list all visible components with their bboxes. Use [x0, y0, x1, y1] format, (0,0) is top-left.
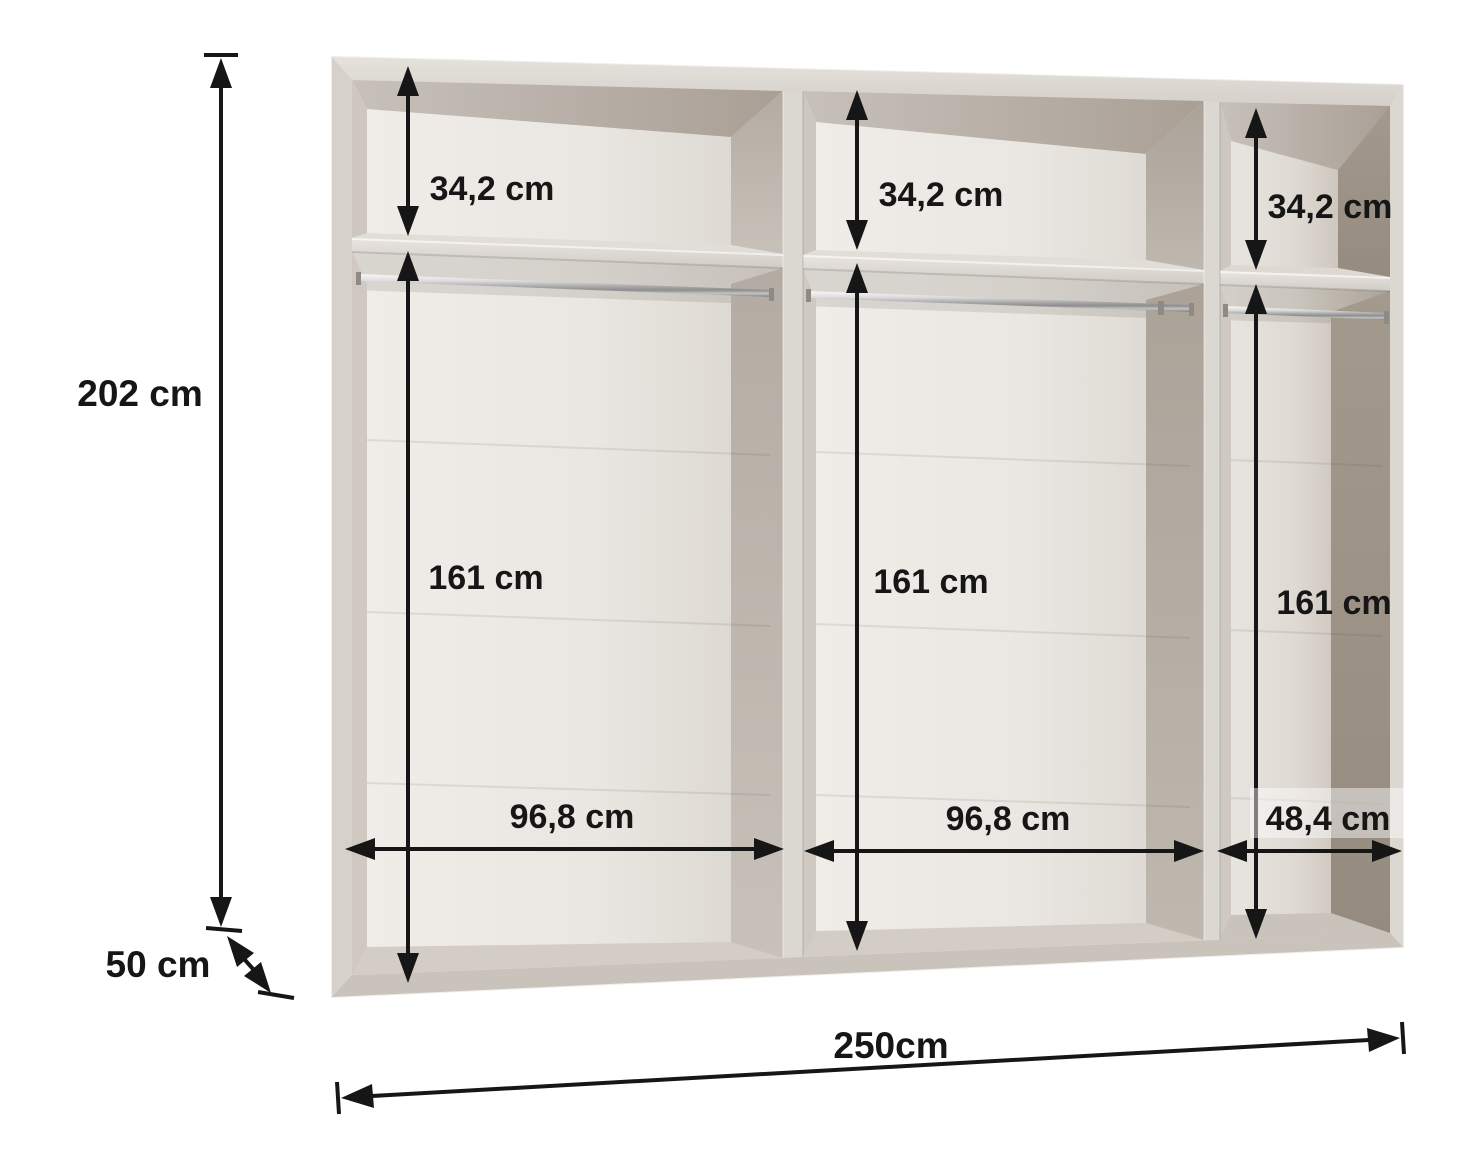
shelf-height-label-right: 34,2 cm	[1268, 188, 1393, 226]
compartment-left-upper	[352, 80, 783, 254]
shelf-height-label-middle: 34,2 cm	[879, 176, 1004, 214]
wardrobe-dimension-diagram: 202 cm 50 cm 250cm 34,2 cm 161 cm 96,8 c…	[0, 0, 1480, 1162]
dim-tick	[1402, 1022, 1404, 1054]
rail-bracket	[1223, 304, 1228, 317]
compartment-left-lower	[352, 252, 783, 975]
dimension-overall-width: 250cm	[337, 1022, 1404, 1114]
hanging-height-label-middle: 161 cm	[873, 563, 988, 601]
rail-bracket	[1158, 301, 1164, 315]
divider-front-face	[783, 91, 803, 958]
arrowhead-up-icon	[210, 58, 232, 88]
width-label-middle: 96,8 cm	[946, 800, 1071, 838]
divider-left	[783, 91, 803, 958]
dim-line	[245, 960, 253, 969]
width-label-right: 48,4 cm	[1266, 800, 1391, 838]
overall-depth-label: 50 cm	[106, 944, 211, 985]
arrowhead-down-icon	[210, 897, 232, 927]
rail-bracket	[769, 288, 774, 301]
frame-left-face	[332, 57, 352, 997]
dimension-overall-height: 202 cm	[77, 55, 242, 931]
arrowhead-left-icon	[341, 1084, 374, 1108]
shelf-height-label-left: 34,2 cm	[430, 170, 555, 208]
arrowhead-upleft-icon	[227, 936, 254, 967]
arrowhead-downright-icon	[244, 962, 271, 993]
width-label-left: 96,8 cm	[510, 798, 635, 836]
left-side-face	[1220, 285, 1231, 940]
diagram-svg: 202 cm 50 cm 250cm 34,2 cm 161 cm 96,8 c…	[0, 0, 1480, 1162]
hanging-height-label-right: 161 cm	[1276, 584, 1391, 622]
divider-right	[1204, 101, 1220, 940]
overall-height-label: 202 cm	[77, 373, 203, 414]
dimension-overall-depth: 50 cm	[106, 936, 294, 998]
rail-bracket	[1384, 311, 1389, 324]
compartment-middle-lower	[803, 269, 1204, 957]
overall-width-label: 250cm	[833, 1025, 948, 1066]
rail-bracket	[356, 272, 361, 285]
rail-bracket	[806, 289, 811, 302]
rail-bracket	[1189, 303, 1194, 316]
hanging-height-label-left: 161 cm	[428, 559, 543, 597]
dim-tick	[337, 1082, 339, 1114]
back-panel	[803, 269, 1204, 957]
dim-tick	[206, 928, 242, 931]
divider-front-face	[1204, 101, 1220, 940]
dim-tick	[258, 992, 294, 998]
left-side-face	[352, 252, 367, 975]
arrowhead-right-icon	[1367, 1028, 1400, 1052]
